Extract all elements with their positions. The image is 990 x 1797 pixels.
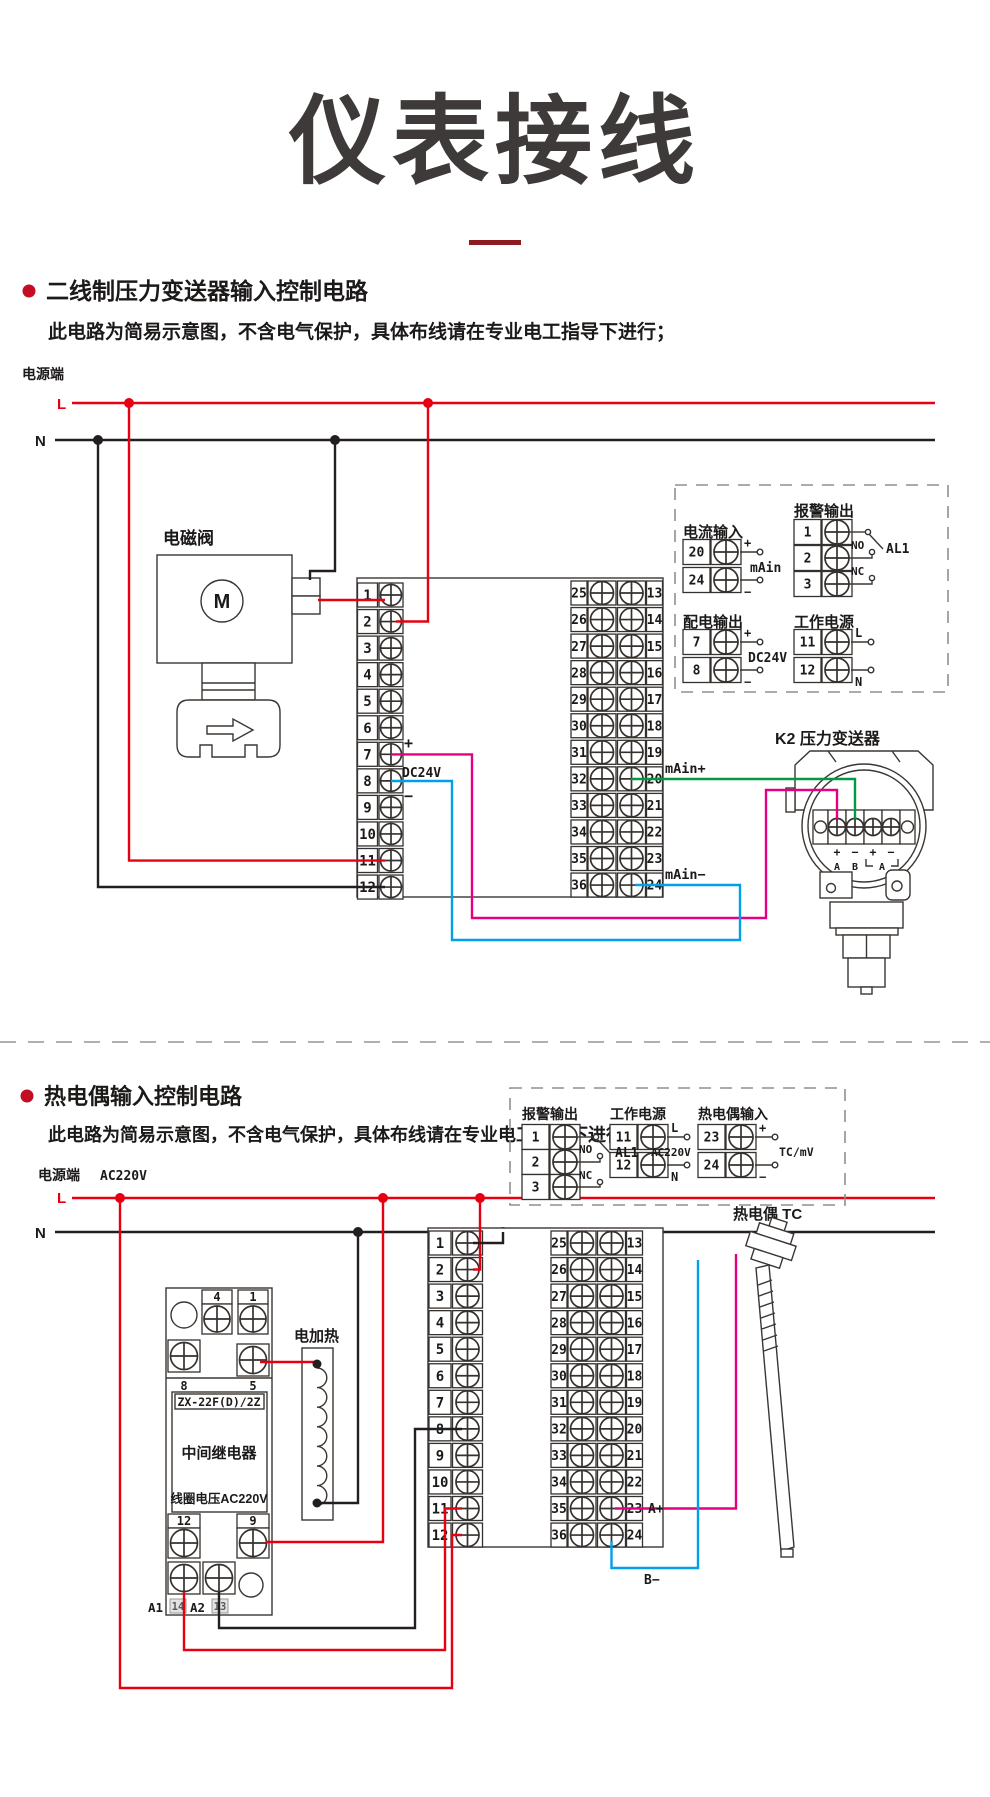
open-terminal-icon [868,639,874,645]
terminal-number: 13 [627,1237,643,1252]
open-terminal-icon [684,1162,690,1168]
legend2-work-power-title: 工作电源 [610,1106,666,1122]
terminal-number: 35 [551,1502,567,1517]
open-terminal-icon [772,1162,778,1168]
terminal-number: 34 [571,826,587,841]
main-minus-label: mAin− [665,867,706,883]
tx-mark: − [852,845,859,859]
polarity-mark: N [671,1170,678,1184]
terminal-number: 4 [436,1316,444,1332]
line-l-label: L [57,396,66,413]
polarity-mark: + [744,536,751,550]
legend-terminal-number: 11 [616,1131,632,1146]
terminal-number: 1 [363,588,371,604]
solenoid-valve: 电磁阀 M [157,528,320,757]
nc-label: NC [851,565,864,578]
terminal-number: 29 [571,693,587,708]
relay-terminal-a2: A2 [190,1600,205,1615]
terminal-number: 13 [647,587,663,602]
section1-power-terminal-label: 电源端 [22,366,64,382]
title-underline [469,240,521,245]
legend-terminal-number: 2 [804,552,812,567]
thermocouple: 热电偶 TC [733,1205,802,1557]
legend-main-label: mAin [750,561,781,576]
a-plus-label: A+ [648,1502,664,1517]
polarity-mark: − [744,585,751,599]
terminal-number: 33 [571,799,587,814]
legend-dist-output-title: 配电输出 [683,613,743,631]
tx-mark: + [834,845,841,859]
open-terminal-icon [684,1134,690,1140]
polarity-mark: N [855,675,862,689]
polarity-mark: − [744,675,751,689]
legend-terminal-number: 1 [804,526,812,541]
terminal-number: 5 [436,1342,444,1358]
relay-terminal-9: 9 [249,1514,256,1528]
section1-bullet-icon [23,285,36,298]
relay-terminal-8: 8 [180,1379,187,1393]
terminal-number: 21 [647,799,663,814]
terminal-number: 30 [551,1369,567,1384]
terminal-number: 17 [627,1343,643,1358]
section2-voltage-label: AC220V [100,1169,147,1184]
tx-mark: − [888,845,895,859]
terminal-number: 10 [432,1475,449,1491]
heater-label: 电加热 [294,1327,339,1345]
section2-bullet-icon [21,1090,34,1103]
polarity-mark: L [671,1121,678,1135]
legend-box-2: 报警输出 工作电源 热电偶输入 12311L12N23+24− AC220V T… [510,1088,845,1205]
polarity-mark: + [759,1121,766,1135]
al1-label: AL1 [886,542,910,557]
terminal-number: 24 [647,879,663,894]
dc24v-label: DC24V [402,766,441,781]
terminal-number: 15 [627,1290,643,1305]
open-terminal-icon [757,577,763,583]
relay-terminal-12: 12 [177,1514,191,1528]
terminal-number: 18 [627,1369,643,1384]
terminal-number: 16 [647,666,663,681]
section2-power-terminal-label: 电源端 [38,1167,80,1183]
terminal-number: 15 [647,640,663,655]
legend-work-power-title: 工作电源 [794,613,854,631]
legend2-alarm-title: 报警输出 [522,1106,578,1122]
nc-label: NC [579,1169,592,1182]
legend-dc24v-label: DC24V [748,651,787,666]
tc-probe [756,1265,794,1551]
terminal-number: 6 [436,1369,444,1385]
solenoid-label: 电磁阀 [163,528,214,548]
legend-box-1: 电流输入 mAin 报警输出 配电输出 DC24V 工作电源 20+24−123… [675,485,948,692]
motor-mark: M [214,591,231,613]
terminal-number: 27 [571,640,587,655]
diagram-canvas: 仪表接线 二线制压力变送器输入控制电路 此电路为简易示意图，不含电气保护，具体布… [0,0,990,1797]
wiring-diagram-page: 仪表接线 二线制压力变送器输入控制电路 此电路为简易示意图，不含电气保护，具体布… [0,0,990,1797]
intermediate-relay: 4 1 8 5 ZX-22F(D)/2Z 中间继电器 线圈电压AC220V 12… [148,1288,272,1615]
polarity-mark: + [744,626,751,640]
terminal-number: 3 [436,1289,444,1305]
terminal-number: 9 [436,1448,444,1464]
terminal-number: 22 [647,826,663,841]
terminal-number: 5 [363,694,371,710]
open-terminal-icon [757,667,763,673]
terminal-number: 23 [647,852,663,867]
terminal-number: 16 [627,1316,643,1331]
terminal-number: 6 [363,721,371,737]
terminal-number: 27 [551,1290,567,1305]
legend-terminal-number: 1 [532,1131,540,1146]
terminal-number: 36 [571,879,587,894]
legend-terminal-number: 3 [532,1181,540,1196]
terminal-number: 19 [647,746,663,761]
terminal-number: 10 [359,827,376,843]
open-terminal-icon [772,1134,778,1140]
terminal-number: 22 [627,1476,643,1491]
legend-terminal-number: 24 [704,1159,720,1174]
terminal-number: 26 [551,1263,567,1278]
terminal-number: 32 [571,773,587,788]
terminal-number: 32 [551,1423,567,1438]
legend-current-input-title: 电流输入 [683,523,743,541]
electric-heater: 电加热 [294,1327,339,1520]
tx-mark: + [870,845,877,859]
relay-coil-voltage: 线圈电压AC220V [170,1491,268,1506]
solenoid-connector-bottom [292,596,320,614]
terminal-number: 2 [363,615,371,631]
legend-terminal-number: 8 [693,664,701,679]
relay-terminal-a1: A1 [148,1600,163,1615]
terminal-number: 17 [647,693,663,708]
terminal-number: 18 [647,719,663,734]
relay-terminal-14: 14 [172,1601,185,1613]
section2-heading: 热电偶输入控制电路 [44,1084,243,1109]
legend-terminal-number: 24 [689,574,705,589]
terminal-number: 19 [627,1396,643,1411]
terminal-number: 21 [627,1449,643,1464]
legend-terminal-number: 2 [532,1156,540,1171]
open-terminal-icon [868,667,874,673]
al1-label: AL1 [615,1146,639,1161]
thermocouple-label: 热电偶 TC [733,1205,802,1223]
wire-n-to-solenoid [310,440,335,580]
relay-name: 中间继电器 [181,1444,257,1462]
terminal-number: 31 [571,746,587,761]
legend-terminal-number: 11 [800,636,816,651]
terminal-number: 25 [551,1237,567,1252]
terminal-number: 14 [647,613,663,628]
polarity-mark: − [759,1170,766,1184]
no-label: NO [579,1143,593,1156]
main-plus-label: mAin+ [665,761,706,777]
plus-label: + [404,734,413,752]
legend-terminal-number: 23 [704,1131,720,1146]
relay-terminal-5: 5 [249,1379,256,1393]
open-terminal-icon [757,639,763,645]
pressure-transmitter: K2 压力变送器 + − + − A B A [775,729,933,994]
line-n-label: N [35,1225,46,1242]
terminal-number: 9 [363,800,371,816]
terminal-number: 8 [363,774,371,790]
terminal-number: 30 [571,719,587,734]
terminal-number: 1 [436,1236,444,1252]
terminal-number: 7 [363,747,371,763]
relay-terminal-4: 4 [213,1290,220,1304]
terminal-number: 34 [551,1476,567,1491]
terminal-number: 3 [363,641,371,657]
no-label: NO [851,539,865,552]
transmitter-label: K2 压力变送器 [775,729,881,748]
terminal-number: 24 [627,1529,643,1544]
terminal-number: 4 [363,668,371,684]
section1-heading: 二线制压力变送器输入控制电路 [46,278,369,304]
terminal-number: 33 [551,1449,567,1464]
terminal-number: 35 [571,852,587,867]
minus-label: − [404,787,413,805]
page-title: 仪表接线 [288,87,701,196]
section1-note: 此电路为简易示意图，不含电气保护，具体布线请在专业电工指导下进行； [48,320,675,343]
tx-group: B [852,862,858,873]
tx-group: A [879,862,885,873]
legend-alarm-title: 报警输出 [794,502,854,520]
legend2-ac220v-label: AC220V [651,1146,691,1159]
legend-terminal-number: 3 [804,578,812,593]
alarm-relay-symbol: AL1 NO NC [849,529,910,584]
terminal-number: 14 [627,1263,643,1278]
legend2-tc-input-title: 热电偶输入 [698,1106,768,1122]
open-terminal-icon [757,549,763,555]
legend-terminal-number: 7 [693,636,701,651]
solenoid-connector-top [292,578,320,596]
terminal-number: 31 [551,1396,567,1411]
terminal-number: 29 [551,1343,567,1358]
terminal-number: 28 [571,666,587,681]
relay-model: ZX-22F(D)/2Z [177,1395,260,1409]
line-n-label: N [35,433,46,450]
terminal-number: 7 [436,1395,444,1411]
terminal-number: 2 [436,1263,444,1279]
circuit1-power-lines: L N [35,396,935,450]
terminal-number: 36 [551,1529,567,1544]
legend-terminal-number: 20 [689,546,705,561]
terminal-number: 26 [571,613,587,628]
terminal-number: 20 [627,1423,643,1438]
legend2-tcmv-label: TC/mV [779,1145,814,1159]
terminal-number: 25 [571,587,587,602]
b-minus-label: B− [644,1573,660,1588]
relay-terminal-1: 1 [249,1290,256,1304]
polarity-mark: L [855,626,862,640]
legend-terminal-number: 12 [800,664,816,679]
terminal-number: 28 [551,1316,567,1331]
line-l-label: L [57,1190,66,1207]
